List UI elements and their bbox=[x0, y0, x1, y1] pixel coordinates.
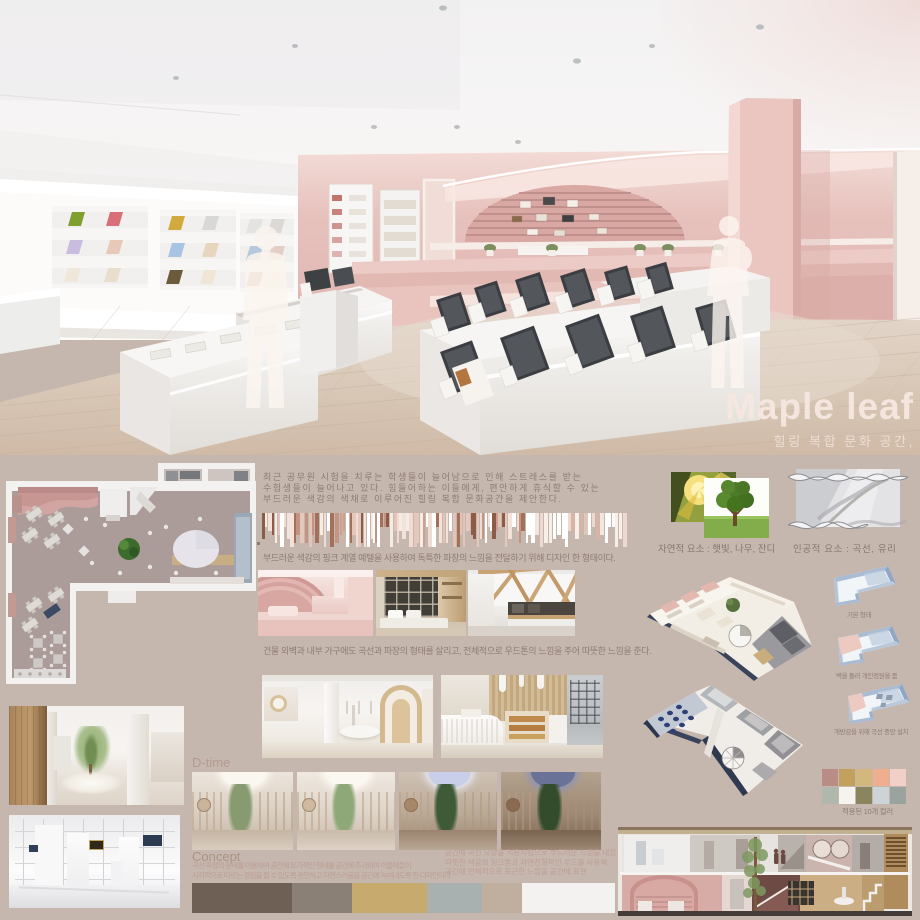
svg-text:힐링 복합 문화 공간,: 힐링 복합 문화 공간, bbox=[774, 434, 915, 449]
svg-text:Maple leaf: Maple leaf bbox=[725, 386, 914, 427]
